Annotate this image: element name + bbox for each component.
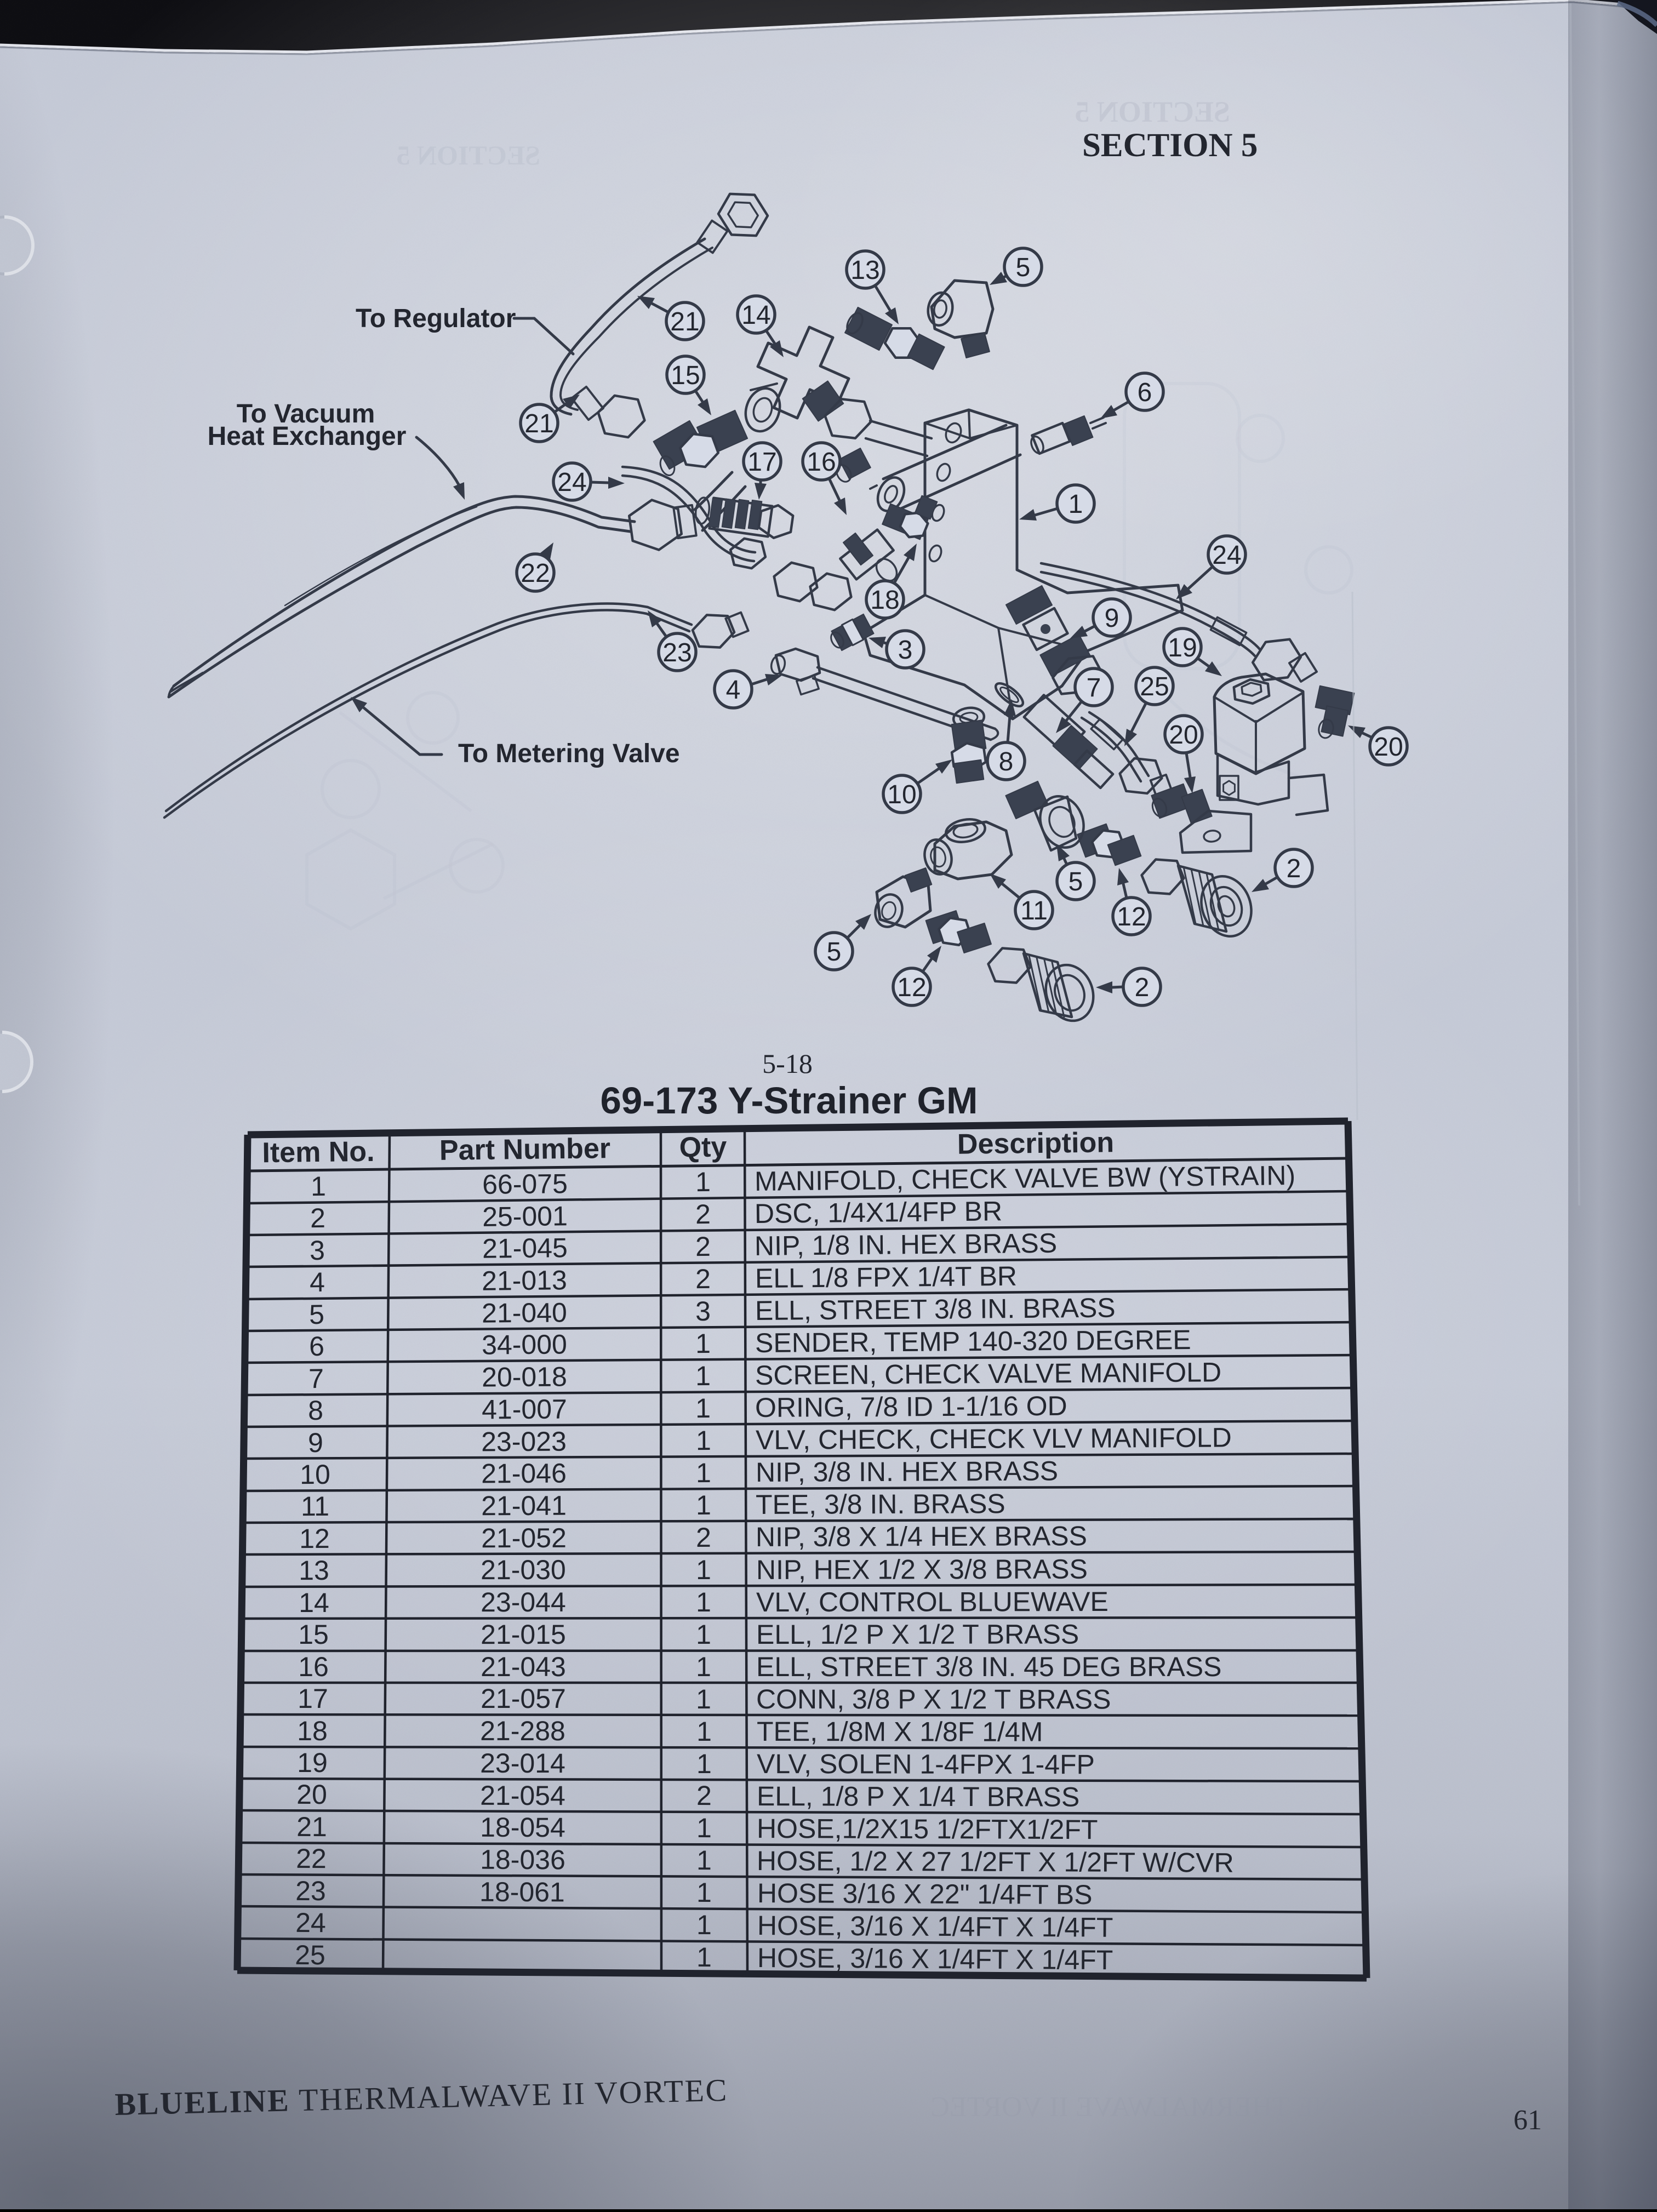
svg-text:TEE, 1/8M X 1/8F 1/4M: TEE, 1/8M X 1/8F 1/4M <box>757 1716 1043 1747</box>
svg-text:1: 1 <box>696 1425 711 1456</box>
svg-text:VLV, CONTROL BLUEWAVE: VLV, CONTROL BLUEWAVE <box>756 1586 1109 1617</box>
svg-text:ORING, 7/8 ID 1-1/16 OD: ORING, 7/8 ID 1-1/16 OD <box>755 1391 1067 1423</box>
svg-text:1: 1 <box>696 1910 712 1940</box>
svg-text:9: 9 <box>1105 604 1119 633</box>
svg-text:10: 10 <box>300 1459 330 1490</box>
svg-text:5: 5 <box>1016 253 1031 282</box>
svg-text:23: 23 <box>295 1876 326 1906</box>
svg-text:1: 1 <box>695 1328 711 1359</box>
svg-text:69-173 Y-Strainer GM: 69-173 Y-Strainer GM <box>600 1079 978 1122</box>
svg-text:Description: Description <box>957 1127 1115 1160</box>
svg-text:21-030: 21-030 <box>481 1554 566 1585</box>
svg-text:1: 1 <box>696 1877 712 1908</box>
svg-text:To Regulator: To Regulator <box>356 304 516 333</box>
svg-text:HOSE, 3/16 X 1/4FT X 1/4FT: HOSE, 3/16 X 1/4FT X 1/4FT <box>757 1910 1113 1943</box>
svg-text:HOSE, 3/16 X 1/4FT X 1/4FT: HOSE, 3/16 X 1/4FT X 1/4FT <box>757 1942 1113 1975</box>
svg-text:18-054: 18-054 <box>480 1812 565 1843</box>
svg-text:25: 25 <box>1140 672 1169 701</box>
svg-text:1: 1 <box>696 1748 712 1779</box>
svg-text:21: 21 <box>296 1811 327 1842</box>
svg-text:21-288: 21-288 <box>480 1716 565 1746</box>
svg-text:1: 1 <box>695 1393 711 1424</box>
svg-text:18-036: 18-036 <box>480 1844 565 1876</box>
svg-text:BLUELINE THERMALWAVE II VORTEC: BLUELINE THERMALWAVE II VORTEC <box>930 2091 1436 2123</box>
svg-text:2: 2 <box>696 1780 712 1811</box>
svg-text:1: 1 <box>695 1361 711 1391</box>
svg-text:3: 3 <box>695 1296 711 1327</box>
svg-text:2: 2 <box>696 1522 711 1553</box>
svg-text:34-000: 34-000 <box>482 1329 567 1360</box>
svg-text:MANIFOLD, CHECK VALVE BW (YSTR: MANIFOLD, CHECK VALVE BW (YSTRAIN) <box>755 1160 1296 1197</box>
svg-text:3: 3 <box>898 636 913 665</box>
svg-text:21-043: 21-043 <box>481 1651 566 1682</box>
svg-text:23: 23 <box>662 638 692 667</box>
svg-text:NIP, 1/8 IN. HEX BRASS: NIP, 1/8 IN. HEX BRASS <box>755 1228 1058 1261</box>
svg-text:SECTION 5: SECTION 5 <box>1082 127 1258 164</box>
svg-text:1: 1 <box>695 1167 711 1197</box>
svg-text:11: 11 <box>1020 896 1048 925</box>
svg-text:4: 4 <box>310 1267 325 1298</box>
svg-text:20: 20 <box>296 1779 327 1810</box>
svg-text:1: 1 <box>1069 490 1083 519</box>
svg-text:21: 21 <box>670 307 699 336</box>
svg-text:23-014: 23-014 <box>480 1748 565 1779</box>
svg-text:12: 12 <box>897 973 926 1002</box>
svg-text:21-041: 21-041 <box>481 1490 567 1522</box>
svg-text:13: 13 <box>299 1555 329 1586</box>
svg-text:SECTION 5: SECTION 5 <box>1075 95 1230 128</box>
svg-text:13: 13 <box>850 256 879 285</box>
svg-text:14: 14 <box>741 301 770 330</box>
svg-text:24: 24 <box>1212 541 1241 570</box>
svg-text:ELL, STREET 3/8 IN. BRASS: ELL, STREET 3/8 IN. BRASS <box>755 1293 1116 1326</box>
svg-text:2: 2 <box>1287 854 1301 883</box>
svg-text:1: 1 <box>696 1651 711 1682</box>
svg-text:2: 2 <box>1135 973 1150 1002</box>
svg-text:19: 19 <box>297 1747 328 1778</box>
svg-text:9: 9 <box>308 1427 323 1458</box>
svg-text:SCREEN, CHECK VALVE MANIFOLD: SCREEN, CHECK VALVE MANIFOLD <box>755 1357 1221 1391</box>
svg-text:5: 5 <box>1069 867 1083 896</box>
svg-text:21-052: 21-052 <box>481 1523 567 1553</box>
svg-text:18: 18 <box>297 1716 328 1746</box>
svg-text:1: 1 <box>696 1554 711 1585</box>
svg-text:1: 1 <box>696 1845 712 1876</box>
svg-text:VLV, CHECK, CHECK VLV MANIFOLD: VLV, CHECK, CHECK VLV MANIFOLD <box>756 1422 1232 1455</box>
svg-text:5-18: 5-18 <box>762 1048 813 1079</box>
svg-text:8: 8 <box>999 747 1014 776</box>
svg-text:ELL, 1/2 P X 1/2 T BRASS: ELL, 1/2 P X 1/2 T BRASS <box>756 1619 1079 1650</box>
svg-text:8: 8 <box>308 1395 323 1426</box>
svg-text:5: 5 <box>309 1299 324 1330</box>
svg-text:16: 16 <box>298 1651 329 1682</box>
svg-text:6: 6 <box>1138 378 1152 407</box>
svg-text:25-001: 25-001 <box>482 1201 568 1232</box>
svg-text:22: 22 <box>296 1843 327 1874</box>
svg-text:1: 1 <box>696 1942 712 1973</box>
svg-text:1: 1 <box>696 1684 711 1714</box>
svg-text:21-054: 21-054 <box>480 1780 565 1811</box>
svg-text:6: 6 <box>309 1331 324 1362</box>
svg-text:Part Number: Part Number <box>439 1133 611 1167</box>
svg-text:7: 7 <box>308 1363 324 1394</box>
svg-text:Heat Exchanger: Heat Exchanger <box>208 422 407 451</box>
svg-text:66-075: 66-075 <box>482 1168 568 1200</box>
svg-text:ELL, 1/8 P X 1/4 T BRASS: ELL, 1/8 P X 1/4 T BRASS <box>757 1781 1079 1813</box>
svg-text:3: 3 <box>310 1235 325 1266</box>
svg-text:21-057: 21-057 <box>481 1683 566 1714</box>
svg-text:23-044: 23-044 <box>481 1587 566 1617</box>
svg-text:61: 61 <box>1513 2105 1542 2136</box>
svg-text:20: 20 <box>1374 733 1403 762</box>
svg-text:CONN, 3/8 P X 1/2 T BRASS: CONN, 3/8 P X 1/2 T BRASS <box>756 1684 1111 1714</box>
svg-text:15: 15 <box>671 361 700 390</box>
svg-text:18: 18 <box>870 586 899 615</box>
svg-text:2: 2 <box>310 1203 325 1233</box>
svg-text:21-040: 21-040 <box>482 1297 567 1328</box>
svg-text:1: 1 <box>696 1813 712 1843</box>
svg-text:24: 24 <box>295 1907 326 1938</box>
svg-text:4: 4 <box>726 676 741 705</box>
svg-text:41-007: 41-007 <box>482 1394 567 1425</box>
svg-text:HOSE, 1/2 X 27 1/2FT X 1/2FT W: HOSE, 1/2 X 27 1/2FT X 1/2FT W/CVR <box>757 1845 1234 1878</box>
svg-text:DSC, 1/4X1/4FP BR: DSC, 1/4X1/4FP BR <box>755 1196 1003 1229</box>
svg-text:2: 2 <box>695 1231 711 1262</box>
svg-text:21-015: 21-015 <box>481 1619 566 1650</box>
svg-text:ELL, STREET 3/8 IN. 45 DEG BRA: ELL, STREET 3/8 IN. 45 DEG BRASS <box>756 1651 1221 1682</box>
svg-text:HOSE,1/2X15 1/2FTX1/2FT: HOSE,1/2X15 1/2FTX1/2FT <box>757 1813 1098 1845</box>
svg-text:21-046: 21-046 <box>481 1458 567 1489</box>
svg-text:NIP, 3/8 IN. HEX BRASS: NIP, 3/8 IN. HEX BRASS <box>756 1455 1058 1488</box>
svg-text:ELL 1/8 FPX 1/4T BR: ELL 1/8 FPX 1/4T BR <box>755 1261 1018 1294</box>
svg-text:VLV, SOLEN 1-4FPX 1-4FP: VLV, SOLEN 1-4FPX 1-4FP <box>757 1748 1095 1780</box>
svg-text:1: 1 <box>311 1171 326 1202</box>
svg-text:19: 19 <box>1168 633 1197 662</box>
svg-text:5: 5 <box>827 938 842 967</box>
svg-text:20: 20 <box>1169 721 1198 750</box>
svg-text:To Metering Valve: To Metering Valve <box>458 739 680 768</box>
svg-text:25: 25 <box>295 1940 325 1970</box>
svg-text:15: 15 <box>298 1619 329 1650</box>
svg-text:18-061: 18-061 <box>479 1877 565 1908</box>
svg-text:21-045: 21-045 <box>482 1232 568 1264</box>
svg-text:21: 21 <box>524 409 553 438</box>
svg-text:1: 1 <box>696 1716 712 1747</box>
svg-text:1: 1 <box>696 1587 711 1617</box>
svg-text:12: 12 <box>1117 902 1146 931</box>
svg-text:TEE, 3/8 IN. BRASS: TEE, 3/8 IN. BRASS <box>756 1488 1005 1520</box>
svg-text:16: 16 <box>807 448 836 477</box>
svg-text:20-018: 20-018 <box>482 1361 567 1392</box>
svg-text:7: 7 <box>1087 673 1101 702</box>
svg-text:HOSE 3/16 X 22" 1/4FT BS: HOSE 3/16 X 22" 1/4FT BS <box>757 1878 1093 1910</box>
svg-text:1: 1 <box>696 1619 711 1650</box>
svg-text:1: 1 <box>696 1457 711 1488</box>
svg-text:14: 14 <box>299 1587 329 1618</box>
svg-text:11: 11 <box>301 1491 329 1522</box>
svg-text:NIP, HEX 1/2 X 3/8 BRASS: NIP, HEX 1/2 X 3/8 BRASS <box>756 1554 1088 1585</box>
svg-text:21-013: 21-013 <box>482 1265 567 1296</box>
svg-text:10: 10 <box>887 780 916 809</box>
svg-text:1: 1 <box>696 1490 711 1521</box>
svg-text:17: 17 <box>747 448 776 477</box>
svg-text:SENDER, TEMP 140-320 DEGREE: SENDER, TEMP 140-320 DEGREE <box>755 1324 1191 1358</box>
svg-text:NIP, 3/8 X 1/4 HEX BRASS: NIP, 3/8 X 1/4 HEX BRASS <box>756 1521 1087 1552</box>
svg-text:Item No.: Item No. <box>262 1136 375 1169</box>
svg-text:24: 24 <box>557 468 586 497</box>
svg-text:2: 2 <box>695 1199 711 1230</box>
svg-text:22: 22 <box>521 559 550 588</box>
svg-text:2: 2 <box>695 1264 711 1294</box>
svg-text:12: 12 <box>299 1523 330 1554</box>
svg-text:17: 17 <box>298 1683 328 1714</box>
svg-text:23-023: 23-023 <box>481 1426 567 1457</box>
svg-text:Qty: Qty <box>679 1131 727 1163</box>
svg-text:SECTION 5: SECTION 5 <box>396 140 540 170</box>
